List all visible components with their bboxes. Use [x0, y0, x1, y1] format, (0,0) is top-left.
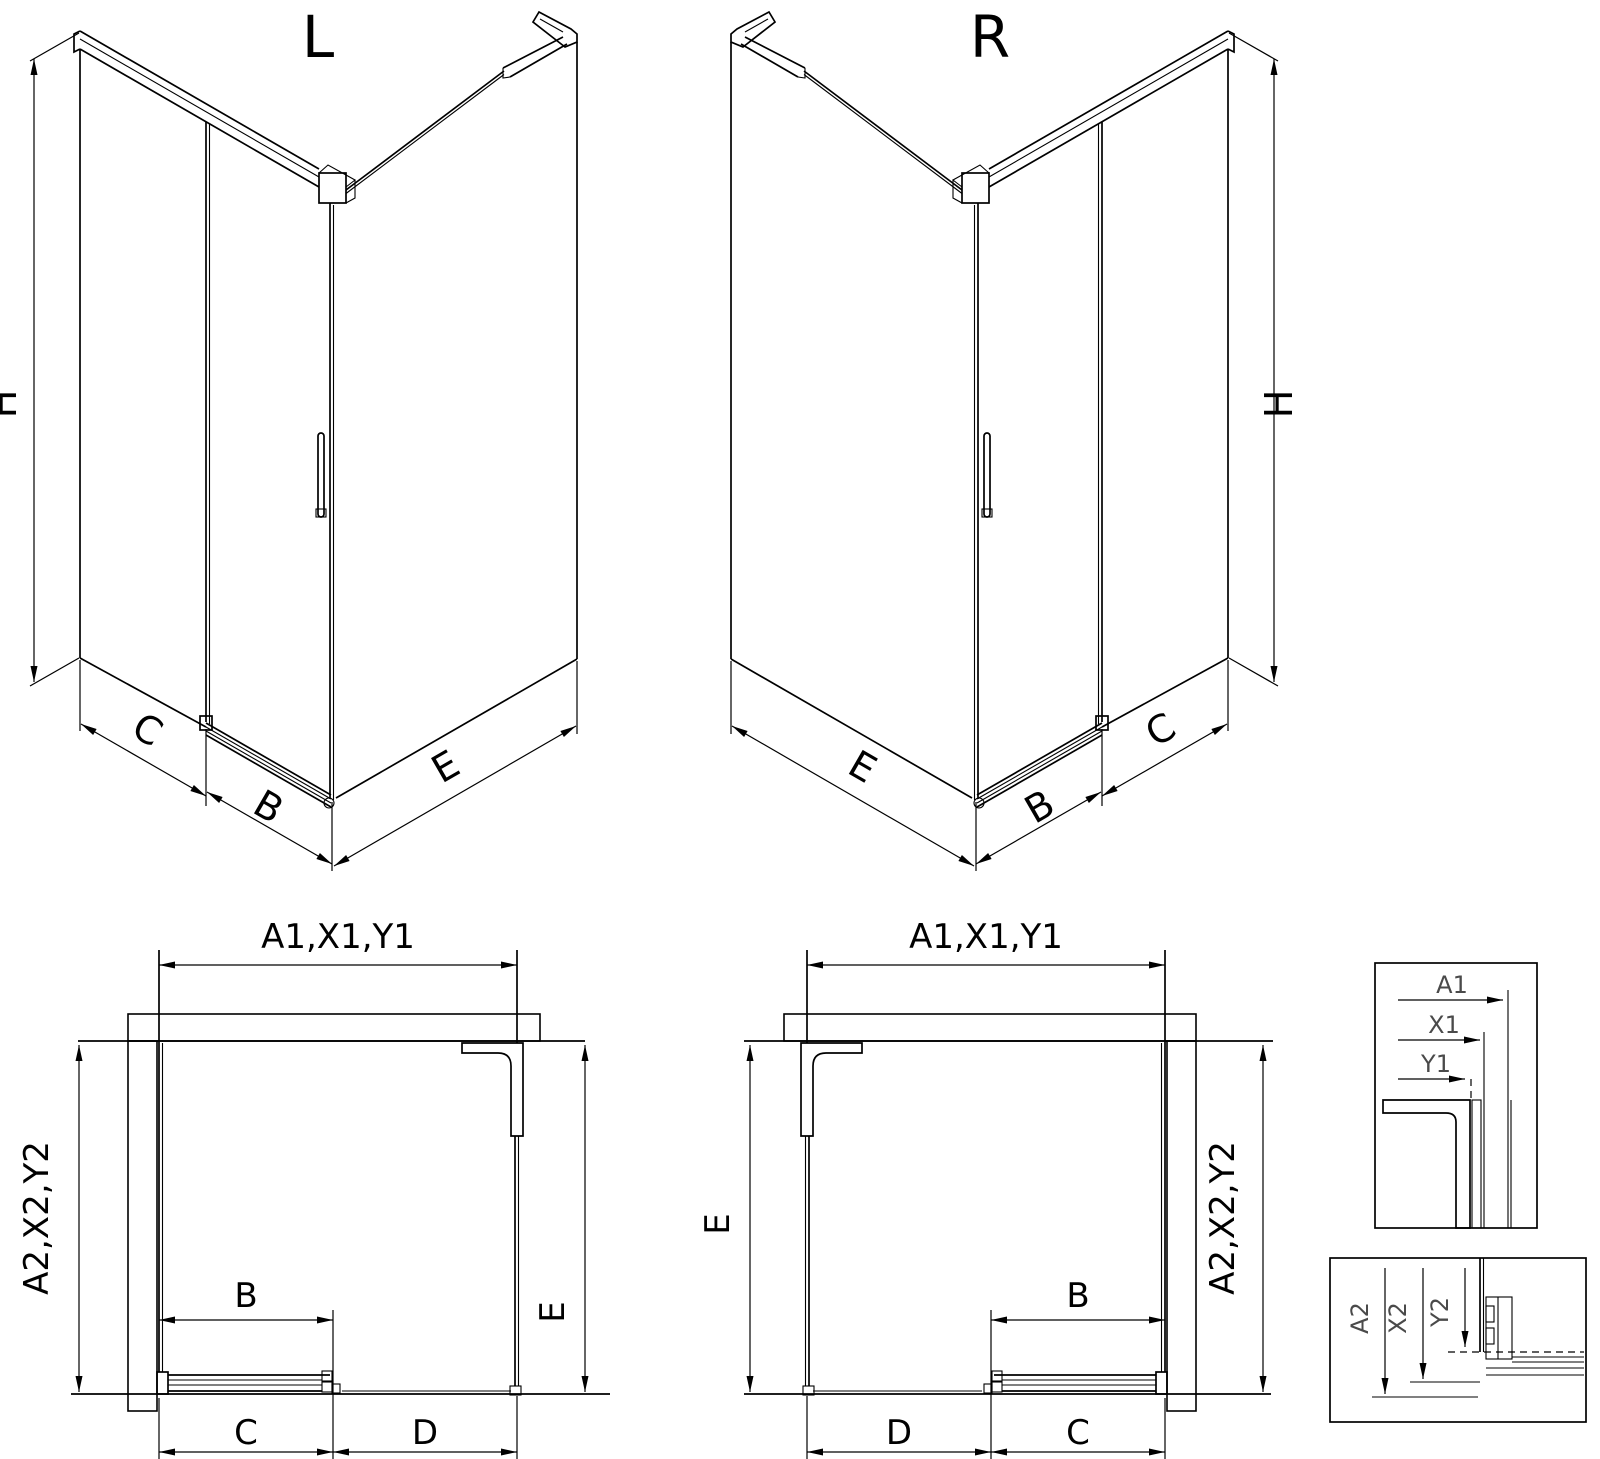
side-panel-left-iso	[80, 49, 206, 727]
detail-view-bottom: A2 X2 Y2	[1330, 1258, 1586, 1422]
dim-a2-right-plan: A2,X2,Y2	[1203, 1045, 1263, 1392]
dim-e-right-label: E	[841, 742, 884, 792]
detail-a1-label: A1	[1436, 971, 1468, 999]
detail-x1-label: X1	[1428, 1011, 1460, 1039]
dim-d-right-plan: D	[807, 1396, 991, 1459]
plan-view-left: A1,X1,Y1 A2,X2,Y2 E B	[17, 917, 610, 1459]
corner-block-right-iso	[953, 165, 989, 203]
dim-h-left-label: H	[0, 390, 25, 419]
dim-a1-left-plan: A1,X1,Y1	[159, 917, 517, 965]
dim-a1-right-plan: A1,X1,Y1	[807, 917, 1165, 965]
walls-left-plan	[78, 1014, 585, 1411]
dim-b-left-plan-label: B	[234, 1276, 257, 1316]
dim-d-right-plan-label: D	[886, 1413, 912, 1453]
top-rail-right-iso	[989, 31, 1234, 187]
dim-h-left-iso: H	[0, 33, 79, 686]
sliding-door-right-iso	[975, 122, 1103, 800]
bottom-rail-left-plan	[157, 1371, 511, 1394]
dim-c-right-label: C	[1138, 704, 1183, 755]
plan-view-right: A1,X1,Y1 A2,X2,Y2 E B	[698, 917, 1273, 1459]
dim-a2-right-plan-label: A2,X2,Y2	[1203, 1141, 1243, 1295]
shower-enclosure-dimension-drawing: L	[0, 0, 1600, 1459]
dim-c-right-iso: C	[1102, 660, 1228, 806]
iso-view-left: L	[0, 3, 577, 871]
dim-c-left-plan: C	[159, 1398, 333, 1459]
iso-view-right: R	[731, 3, 1301, 871]
dim-b-left-iso: B	[207, 781, 332, 871]
bottom-rail-right-plan	[813, 1371, 1167, 1394]
dim-e-left-label: E	[424, 742, 467, 792]
dim-b-left-label: B	[246, 781, 291, 832]
dim-c-left-plan-label: C	[234, 1413, 258, 1453]
iso-left-title: L	[302, 3, 334, 71]
dim-e-left-plan: E	[533, 1045, 585, 1392]
dim-e-right-plan-label: E	[698, 1213, 738, 1234]
dim-c-left-label: C	[125, 704, 170, 755]
dim-c-right-plan-label: C	[1066, 1413, 1090, 1453]
dim-b-right-label: B	[1017, 781, 1062, 832]
dim-h-right-iso: H	[1229, 33, 1301, 686]
side-panel-right-iso	[1102, 49, 1228, 727]
dim-c-right-plan: C	[991, 1398, 1165, 1459]
rail-section-detail-bottom	[1486, 1357, 1584, 1375]
corner-profile-right-plan	[801, 1043, 862, 1136]
walls-right-plan	[744, 1014, 1273, 1411]
corner-block-left-iso	[319, 165, 355, 203]
iso-right-title: R	[970, 3, 1010, 71]
technical-drawing-page: L	[0, 0, 1600, 1459]
dim-a1-right-plan-label: A1,X1,Y1	[909, 917, 1063, 957]
dim-e-left-plan-label: E	[533, 1301, 573, 1322]
detail-a2-label: A2	[1346, 1302, 1374, 1334]
dim-b-right-plan-label: B	[1066, 1276, 1089, 1316]
dim-h-right-label: H	[1257, 390, 1301, 419]
top-rail-left-iso	[74, 31, 319, 187]
glass-panels-left-plan	[159, 950, 523, 1395]
sliding-door-left-iso	[206, 122, 334, 800]
walkin-panel-right-iso	[731, 12, 972, 798]
dim-e-left-iso: E	[334, 661, 577, 866]
detail-y2-label: Y2	[1426, 1297, 1454, 1328]
glass-panels-right-plan	[801, 950, 1165, 1395]
dim-d-left-plan-label: D	[412, 1413, 438, 1453]
glass-section-detail-top	[1472, 1100, 1481, 1228]
wall-profile-detail-top	[1383, 1100, 1470, 1228]
dim-a1-left-plan-label: A1,X1,Y1	[261, 917, 415, 957]
corner-profile-left-plan	[462, 1043, 523, 1136]
dim-e-right-plan: E	[698, 1045, 750, 1392]
detail-y1-label: Y1	[1420, 1050, 1451, 1078]
door-handle-left-iso	[318, 433, 324, 517]
dim-d-left-plan: D	[333, 1396, 517, 1459]
detail-x2-label: X2	[1384, 1302, 1412, 1334]
dim-e-right-iso: E	[731, 661, 974, 866]
walkin-panel-left-iso	[336, 12, 577, 798]
dim-b-right-iso: B	[976, 781, 1101, 871]
dim-a2-left-plan-label: A2,X2,Y2	[17, 1141, 57, 1295]
dim-c-left-iso: C	[80, 660, 206, 806]
door-handle-right-iso	[984, 433, 990, 517]
dim-a2-left-plan: A2,X2,Y2	[17, 1045, 79, 1392]
detail-view-top: A1 X1 Y1	[1375, 963, 1537, 1228]
